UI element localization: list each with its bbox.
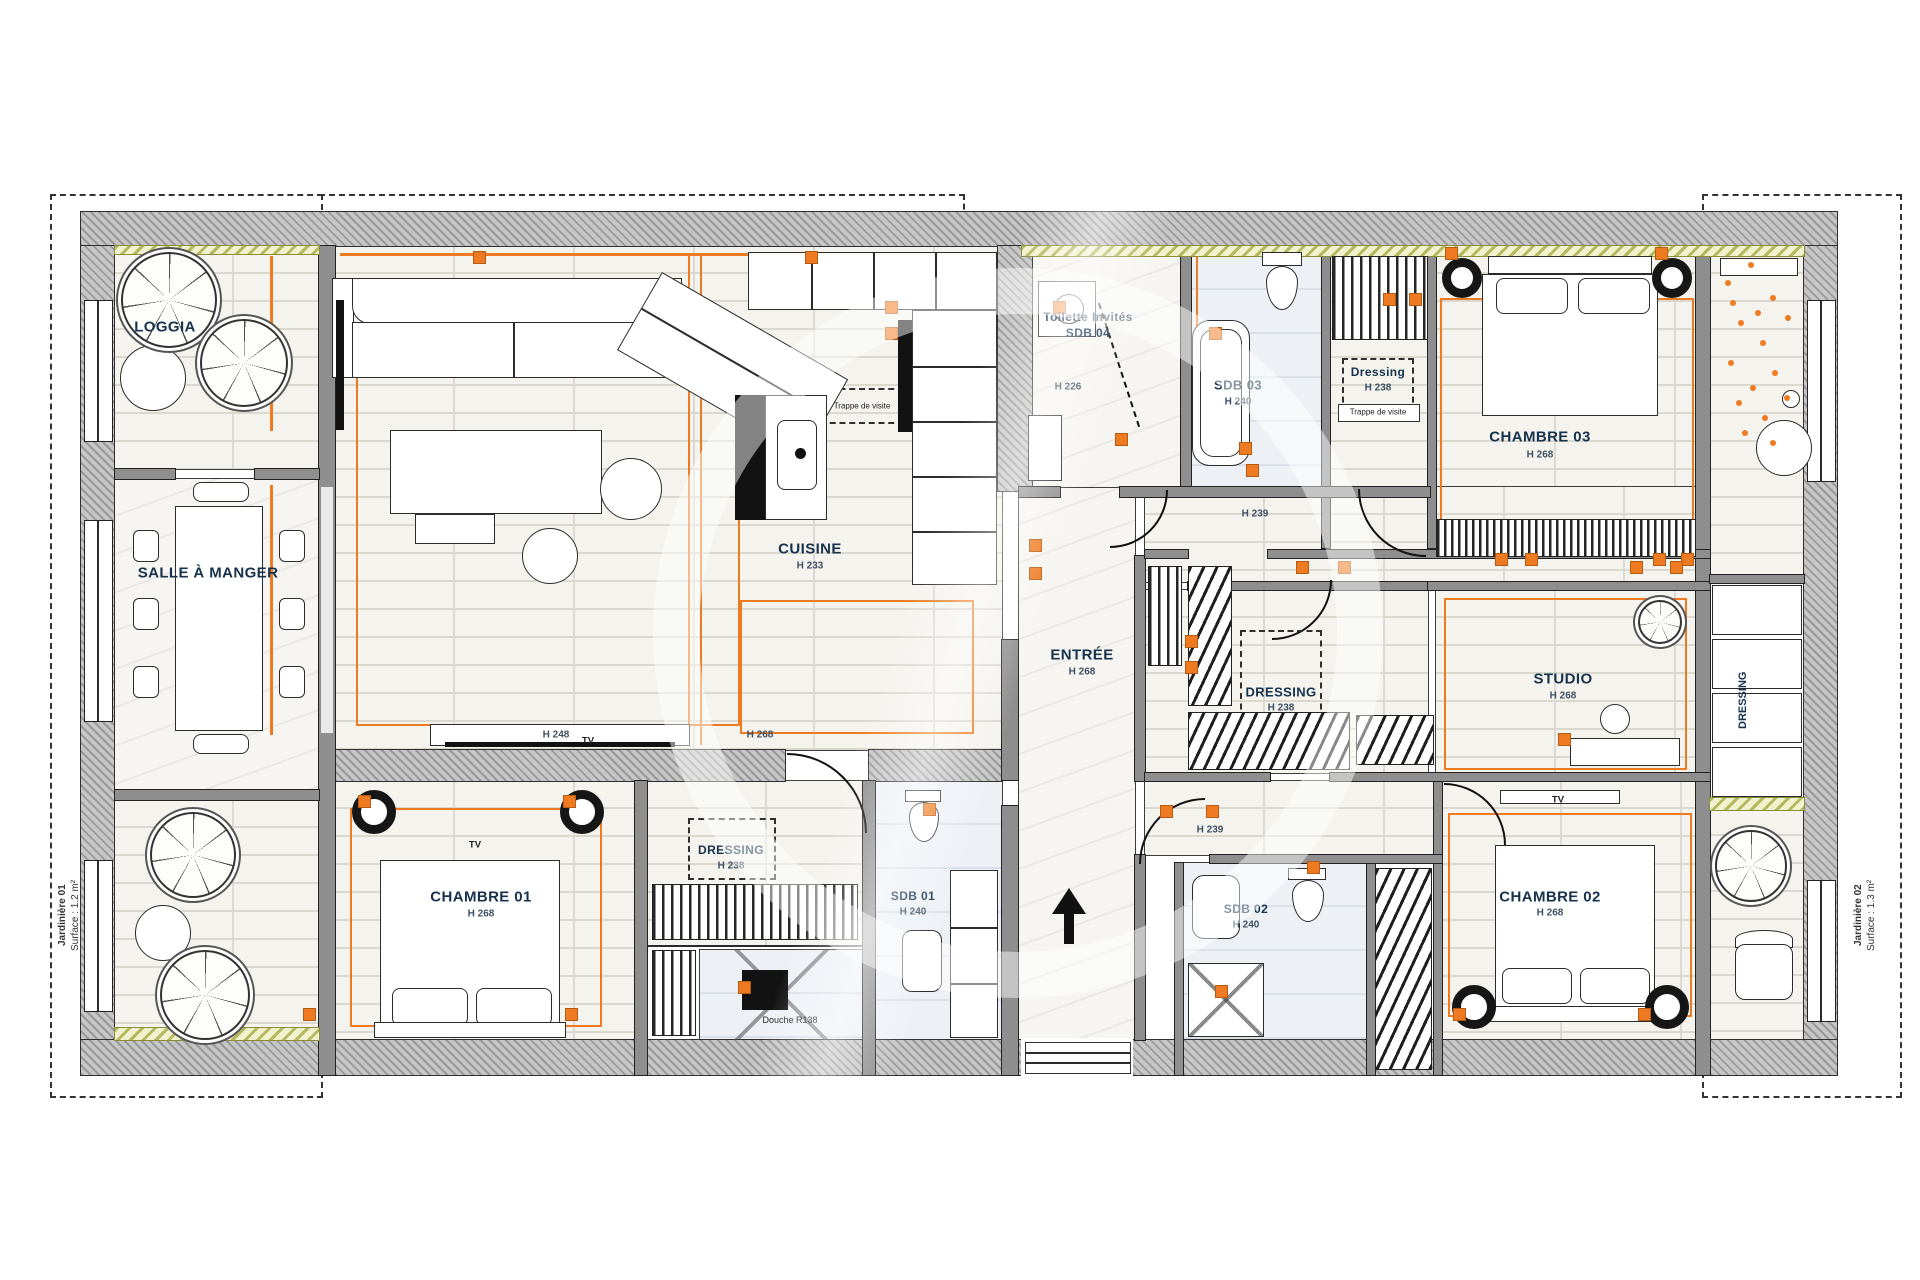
outlet-marker: [1671, 562, 1682, 573]
hanger-rack-dressing01: [652, 884, 858, 940]
bed02-pillow: [1580, 968, 1650, 1004]
label-jardiniere02: Jardinière 02 Surface : 1.3 m²: [1852, 825, 1878, 1005]
kitchen-tall-unit: [898, 320, 912, 432]
plant-dot: [1730, 300, 1736, 306]
wall-kitchen-hall-low: [1002, 806, 1018, 1075]
note-trappe-dressing03: Trappe de visite: [1350, 408, 1407, 417]
outlet-marker: [924, 804, 935, 815]
hanger-rack-douche: [652, 950, 696, 1036]
entrance-steps: [1025, 1042, 1131, 1074]
bed01-pillow: [392, 988, 468, 1026]
side-table: [415, 514, 495, 544]
label-tv-living: TV: [582, 736, 594, 747]
label-douche: Douche R138: [762, 1015, 817, 1025]
plant-dot: [1785, 315, 1791, 321]
outlet-marker: [1639, 1009, 1650, 1020]
outlet-marker: [566, 1009, 577, 1020]
wall-toilette-sdb03: [1181, 246, 1191, 488]
outlet-marker: [304, 1009, 315, 1020]
plant-dot: [1725, 280, 1731, 286]
armchair02-seat: [1735, 944, 1793, 1000]
room-label-sdb01: SDB 01: [891, 889, 935, 903]
note-trappe-kitchen: Trappe de visite: [834, 402, 891, 411]
wall-under-toilette-a: [1019, 487, 1060, 497]
height-label-entree: H 268: [1069, 667, 1096, 678]
outlet-marker: [1247, 465, 1258, 476]
outlet-marker: [806, 252, 817, 263]
room-label-cuisine: CUISINE: [778, 541, 842, 558]
height-label-dressing-central: H 238: [1268, 703, 1295, 714]
wall-right-div-a: [1710, 575, 1804, 583]
outlet-marker: [564, 796, 575, 807]
outlet-marker: [1186, 662, 1197, 673]
glazed-partition: [321, 487, 333, 733]
dining-chair-top: [193, 482, 249, 502]
height-label-toilette: H 226: [1055, 382, 1082, 393]
dining-table: [175, 506, 263, 731]
outlet-marker: [1030, 568, 1041, 579]
armchair: [600, 458, 662, 520]
outlet-marker: [1186, 636, 1197, 647]
outlet-marker: [1654, 554, 1665, 565]
wall-corrB-top-a: [1145, 773, 1270, 781]
plant-dot: [1728, 360, 1734, 366]
room-label-loggia: LOGGIA: [134, 319, 196, 336]
outlet-marker: [1216, 986, 1227, 997]
room-label-dressing-central: DRESSING: [1245, 685, 1316, 700]
wall-kitchen-hall-mid: [1002, 640, 1018, 780]
outlet-marker: [739, 982, 750, 993]
room-label-chambre03: CHAMBRE 03: [1489, 429, 1591, 446]
wall-tv-a: [335, 750, 785, 781]
plant-dot: [1762, 415, 1768, 421]
nightstand03-left: [1442, 258, 1482, 298]
wall-douche-top: [647, 945, 863, 947]
label-tv-chambre02: TV: [1552, 795, 1564, 806]
wall-corrB-bottom: [1210, 855, 1442, 863]
outlet-marker: [1116, 434, 1127, 445]
label-jardiniere01: Jardinière 01 Surface : 1.2 m²: [56, 825, 82, 1005]
room-label-dining: SALLE À MANGER: [138, 565, 279, 582]
nightstand03-right: [1652, 258, 1692, 298]
height-label-studio: H 268: [1550, 691, 1577, 702]
pouf: [522, 528, 578, 584]
height-label-sdb03: H 240: [1225, 397, 1252, 408]
outlet-marker: [474, 252, 485, 263]
label-tv-chambre01: TV: [469, 840, 481, 851]
wall-hall-right-b: [1135, 855, 1145, 1040]
plant-dot: [1772, 370, 1778, 376]
wardrobe-box: [1712, 585, 1802, 635]
plant-jardiniere01-b: [160, 950, 250, 1040]
window-planter01: [84, 860, 113, 1012]
entry-arrow-stem: [1064, 914, 1074, 944]
dining-chair: [279, 666, 305, 698]
bed03-pillow: [1496, 278, 1568, 314]
insulation-top-right: [1022, 246, 1804, 256]
wall-hall-right-a: [1135, 556, 1145, 781]
nightstand02-left: [1452, 985, 1496, 1029]
rack-central-3: [1188, 712, 1350, 770]
sdb01-sink: [902, 930, 942, 992]
outlet-marker: [1656, 248, 1667, 259]
height-label-chambre02: H 268: [1537, 908, 1564, 919]
wall-loggia-dining-b: [255, 469, 319, 479]
floor-plan: LOGGIA SALLE À MANGER CUISINE H 233 Toil…: [0, 0, 1920, 1280]
outlet-marker: [1384, 294, 1395, 305]
bed02-pillow: [1502, 968, 1572, 1004]
wall-corridor-top-a: [1145, 550, 1188, 558]
wardrobe-box: [1712, 693, 1802, 743]
plant-jardiniere02: [1715, 830, 1787, 902]
sdb01-cabinet: [950, 870, 998, 1038]
dining-chair: [279, 598, 305, 630]
curtain-ch03: [1436, 519, 1696, 557]
bed01-pillow: [476, 988, 552, 1026]
cove-kitchen: [740, 600, 974, 734]
plant-dot: [1748, 262, 1754, 268]
jardiniere01-surface: Surface : 1.2 m²: [69, 825, 82, 1005]
outlet-marker: [1526, 554, 1537, 565]
wardrobe-box: [1712, 747, 1802, 797]
jardiniere02-surface: Surface : 1.3 m²: [1865, 825, 1878, 1005]
plant-dot: [1738, 320, 1744, 326]
wall-ch01-dressing01: [635, 781, 647, 1075]
plant-dot: [1736, 400, 1742, 406]
wall-dining-planter: [115, 790, 319, 800]
dining-chair-bottom: [193, 734, 249, 754]
sofa-back: [352, 278, 682, 324]
right-top-room-floor: [1710, 246, 1804, 575]
room-label-sdb03: SDB 03: [1214, 378, 1262, 393]
plant-dot: [1770, 295, 1776, 301]
outlet-marker: [1308, 862, 1319, 873]
wall-sdb03-dressing: [1322, 246, 1330, 548]
dining-chair: [133, 598, 159, 630]
window-dining: [84, 520, 113, 722]
dressing-right-name: DRESSING: [1737, 640, 1750, 760]
room-label-sdb04: SDB 04: [1066, 326, 1110, 340]
rack-central-1: [1148, 566, 1182, 666]
kitchen-wall-units: [912, 310, 997, 585]
outlet-marker: [1454, 1009, 1465, 1020]
wall-media-panel: [336, 300, 344, 430]
label-dressing-right: DRESSING: [1737, 640, 1750, 760]
outlet-marker: [1339, 562, 1350, 573]
sdb02-shower: [1188, 963, 1264, 1037]
height-label-dressing03: H 238: [1365, 383, 1392, 394]
dining-chair: [133, 530, 159, 562]
outlet-marker: [886, 302, 897, 313]
room-label-sdb02: SDB 02: [1224, 902, 1268, 916]
wall-right-block: [1696, 246, 1710, 1075]
wall-dressing-ch03: [1428, 246, 1436, 548]
plant-dot: [1784, 395, 1790, 401]
bed02-headboard: [1490, 1006, 1662, 1022]
window-planter02: [1807, 880, 1836, 1022]
height-label-corridor-b: H 239: [1197, 825, 1224, 836]
kitchen-top-units: [748, 252, 997, 310]
wall-tv-b: [869, 750, 1002, 781]
planter01-table: [135, 905, 191, 961]
window-right-top: [1807, 300, 1836, 482]
outlet-marker: [359, 796, 370, 807]
wardrobe-box: [1712, 639, 1802, 689]
wall-corrB-top-b: [1330, 773, 1710, 781]
cove-dining-v: [270, 485, 273, 735]
room-label-studio: STUDIO: [1533, 671, 1592, 688]
height-label-dressing01: H 238: [718, 861, 745, 872]
bed03-headboard: [1488, 256, 1652, 274]
wall-shaft: [998, 246, 1032, 491]
studio-desk: [1570, 738, 1680, 766]
room-label-chambre02: CHAMBRE 02: [1499, 889, 1601, 906]
plant-dot: [1750, 385, 1756, 391]
bed03-pillow: [1578, 278, 1650, 314]
kitchen-island-counter: [735, 395, 765, 520]
toilet-tank-sdb02: [1288, 868, 1326, 880]
jardiniere01-name: Jardinière 01: [56, 825, 69, 1005]
toilette-cabinet: [1028, 415, 1062, 481]
outlet-marker: [1297, 562, 1308, 573]
room-label-toilette: Toilette Invités: [1043, 310, 1133, 324]
nightstand02-right: [1645, 985, 1689, 1029]
door-arc-ch01: [787, 753, 867, 833]
room-label-chambre01: CHAMBRE 01: [430, 889, 532, 906]
bed01-headboard: [374, 1022, 566, 1038]
coffee-table: [390, 430, 602, 514]
insulation-planter02: [1710, 798, 1804, 810]
plant-dot: [1770, 440, 1776, 446]
room-label-dressing03: Dressing: [1351, 365, 1406, 379]
plant-loggia-2: [200, 319, 288, 407]
plant-studio: [1638, 600, 1682, 644]
wall-loggia-dining-a: [115, 469, 175, 479]
plant-dot: [1755, 310, 1761, 316]
outlet-marker: [1496, 554, 1507, 565]
height-label-sdb02: H 240: [1233, 920, 1260, 931]
plant-jardiniere01-a: [150, 812, 236, 898]
dining-chair: [279, 530, 305, 562]
window-loggia: [84, 300, 113, 442]
boundary-dashed-top: [319, 194, 965, 196]
insulation-top-left: [115, 246, 319, 254]
outlet-marker: [1682, 554, 1693, 565]
height-label-chambre03: H 268: [1527, 450, 1554, 461]
outlet-marker: [1030, 540, 1041, 551]
plant-dot: [1742, 430, 1748, 436]
outlet-marker: [1210, 328, 1221, 339]
loggia-table: [120, 345, 186, 411]
wall-bottom: [81, 1040, 1837, 1075]
outlet-marker: [1240, 443, 1251, 454]
toilet-tank-sdb03: [1262, 252, 1302, 266]
wall-sdb02-left: [1175, 863, 1183, 1075]
plant-dot: [1760, 340, 1766, 346]
jardiniere02-name: Jardinière 02: [1852, 825, 1865, 1005]
room-label-entree: ENTRÉE: [1050, 647, 1113, 664]
outlet-marker: [1410, 294, 1421, 305]
wall-top: [81, 212, 1837, 246]
right-room-bench: [1720, 258, 1798, 276]
height-label-corridor: H 239: [1242, 509, 1269, 520]
height-label-cuisine: H 233: [797, 561, 824, 572]
tv-screen-living: [445, 742, 675, 747]
outlet-marker: [1446, 248, 1457, 259]
outlet-marker: [886, 328, 897, 339]
outlet-marker: [1631, 562, 1642, 573]
wall-studio-top: [1428, 582, 1710, 590]
entry-arrow-icon: [1052, 888, 1086, 914]
outlet-marker: [1161, 806, 1172, 817]
rack-central-4: [1356, 715, 1434, 765]
height-label-sdb01: H 240: [900, 907, 927, 918]
studio-chair: [1600, 704, 1630, 734]
toilet-tank-sdb01: [905, 790, 941, 802]
room-label-dressing01: DRESSING: [698, 843, 764, 857]
wall-rack-ch02: [1434, 781, 1442, 1075]
right-room-table: [1756, 420, 1812, 476]
height-label-living-b: H 268: [747, 730, 774, 741]
height-label-living-a: H 248: [543, 730, 570, 741]
height-label-chambre01: H 268: [468, 909, 495, 920]
dining-chair: [133, 666, 159, 698]
wall-sdb02-rack: [1367, 863, 1375, 1075]
outlet-marker: [1559, 734, 1570, 745]
rack-sdb02: [1375, 868, 1432, 1070]
outlet-marker: [1207, 806, 1218, 817]
kitchen-faucet: [795, 448, 806, 459]
